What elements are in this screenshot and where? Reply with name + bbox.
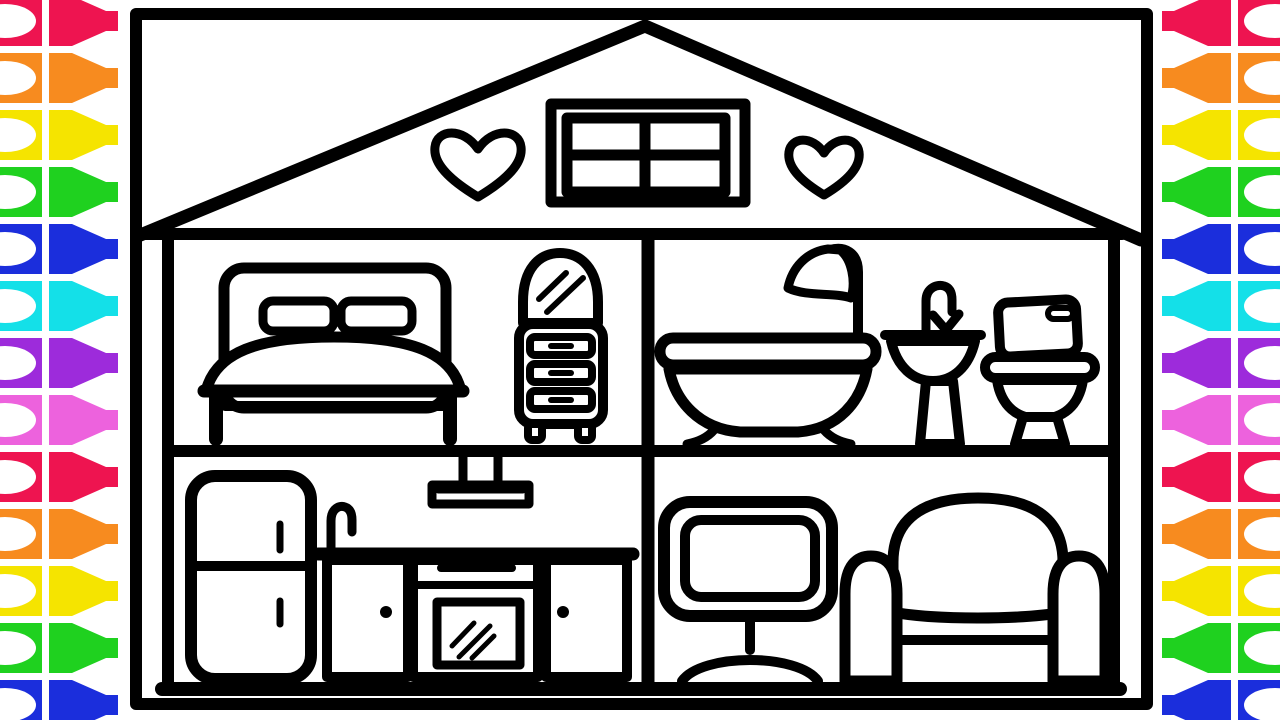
coloring-page xyxy=(0,0,1280,720)
tv-stand-base xyxy=(682,660,818,681)
oven-window xyxy=(437,602,520,665)
living-room xyxy=(664,498,1105,681)
dresser-foot-left xyxy=(528,424,542,440)
cabinet-knob-1 xyxy=(380,606,392,618)
pillow-right xyxy=(341,301,412,331)
heart-left-icon xyxy=(435,133,521,197)
pillow-left xyxy=(263,301,334,331)
armchair-arm-right xyxy=(1053,556,1105,681)
tub-leg-right xyxy=(824,430,851,444)
dresser-foot-right xyxy=(578,424,592,440)
toilet-base xyxy=(1015,417,1065,444)
cabinet-knob-2 xyxy=(557,606,569,618)
armchair-back xyxy=(893,498,1063,618)
bed-blanket xyxy=(206,337,461,391)
kitchen-faucet xyxy=(331,506,352,550)
attic xyxy=(435,104,859,202)
sink-cabinet xyxy=(327,560,408,677)
bathtub-bowl xyxy=(669,369,867,432)
toilet-seat xyxy=(985,357,1095,378)
heart-right-icon xyxy=(789,140,859,195)
dresser-mirror xyxy=(523,253,598,323)
bedroom xyxy=(204,253,603,440)
refrigerator xyxy=(191,476,311,679)
flush-button xyxy=(1048,308,1073,319)
faucet-arrow xyxy=(933,314,959,330)
side-cabinet xyxy=(546,560,627,677)
bathtub-rim xyxy=(660,338,876,365)
sink-pedestal xyxy=(920,381,960,444)
kitchen xyxy=(191,457,633,679)
house-line-art xyxy=(0,0,1280,720)
armchair-arm-left xyxy=(845,556,897,681)
bathroom xyxy=(660,249,1095,444)
sink-bowl xyxy=(891,341,975,381)
shower-head xyxy=(788,249,853,298)
tub-leg-left xyxy=(687,430,714,444)
ceiling-lamp-shade xyxy=(432,485,529,504)
